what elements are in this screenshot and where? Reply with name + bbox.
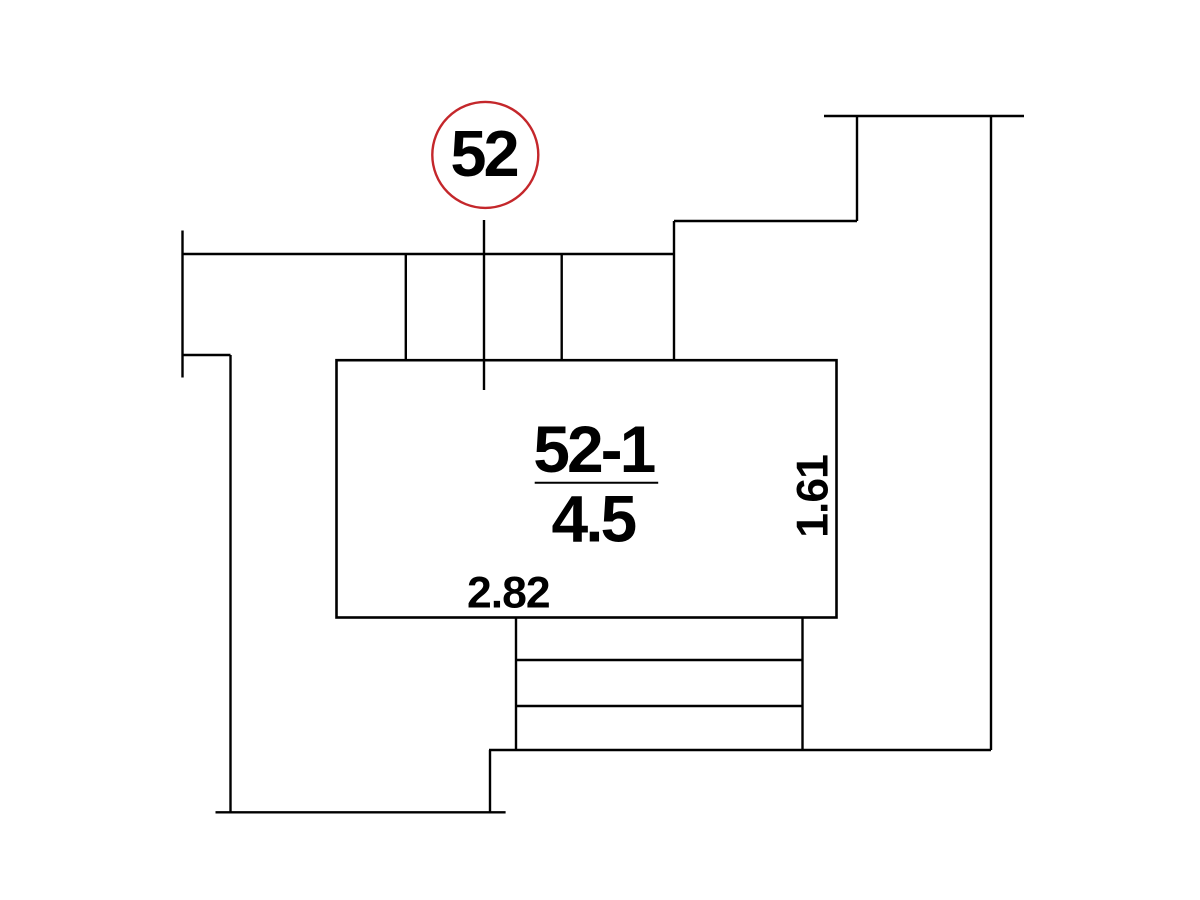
svg-text:52-1: 52-1 <box>533 412 654 486</box>
svg-text:52: 52 <box>450 117 517 190</box>
svg-text:4.5: 4.5 <box>552 481 636 555</box>
svg-text:2.82: 2.82 <box>467 568 550 617</box>
svg-text:1.61: 1.61 <box>789 455 838 538</box>
